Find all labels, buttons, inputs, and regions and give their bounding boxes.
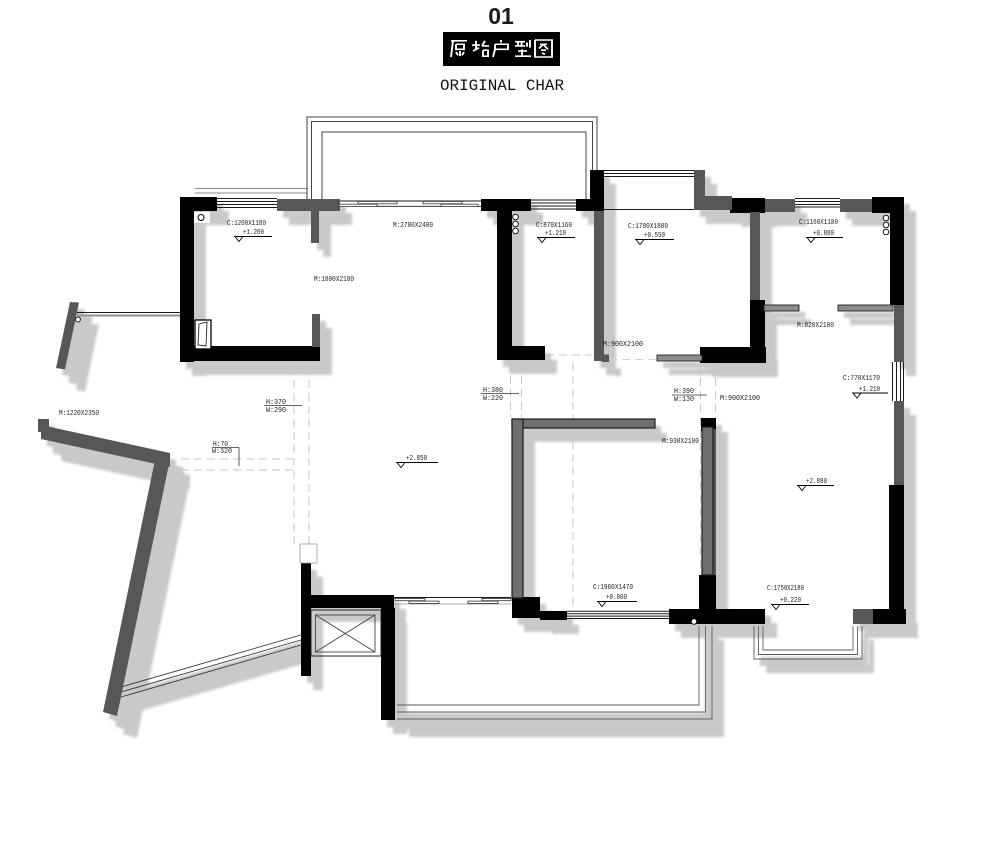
svg-text:W:130: W:130 [674,396,694,404]
svg-text:M:900X2100: M:900X2100 [720,395,760,403]
svg-text:+1.210: +1.210 [859,386,880,394]
svg-text:01: 01 [488,3,514,29]
svg-text:M:820X2100: M:820X2100 [797,322,834,330]
svg-text:C:870X1160: C:870X1160 [536,222,572,230]
svg-text:+0.550: +0.550 [644,232,665,240]
svg-text:W:290: W:290 [266,407,286,415]
svg-text:C:1960X1470: C:1960X1470 [593,584,633,592]
svg-text:ORIGINAL CHAR: ORIGINAL CHAR [440,77,564,95]
svg-text:C:1160X1180: C:1160X1180 [799,219,838,227]
svg-text:+1.210: +1.210 [545,230,566,238]
svg-text:+2.850: +2.850 [406,455,427,463]
svg-text:M:2780X2400: M:2780X2400 [393,222,433,230]
svg-text:W:320: W:320 [212,448,232,456]
svg-text:C:770X1170: C:770X1170 [843,375,880,383]
svg-text:W:220: W:220 [483,395,503,403]
svg-text:C:1200X1180: C:1200X1180 [227,220,266,228]
svg-text:C:1750X2180: C:1750X2180 [767,585,804,593]
svg-text:M:1220X2350: M:1220X2350 [59,410,99,418]
svg-text:M:900X2100: M:900X2100 [603,341,643,349]
svg-text:+0.880: +0.880 [813,230,834,238]
svg-text:+2.880: +2.880 [806,478,827,486]
svg-text:+0.800: +0.800 [606,594,627,602]
svg-text:M:930X2100: M:930X2100 [662,438,699,446]
svg-text:+1.200: +1.200 [243,229,264,237]
svg-text:M:1800X2100: M:1800X2100 [314,276,354,284]
svg-text:C:1780X1800: C:1780X1800 [628,223,668,231]
svg-text:+0.220: +0.220 [780,597,801,605]
